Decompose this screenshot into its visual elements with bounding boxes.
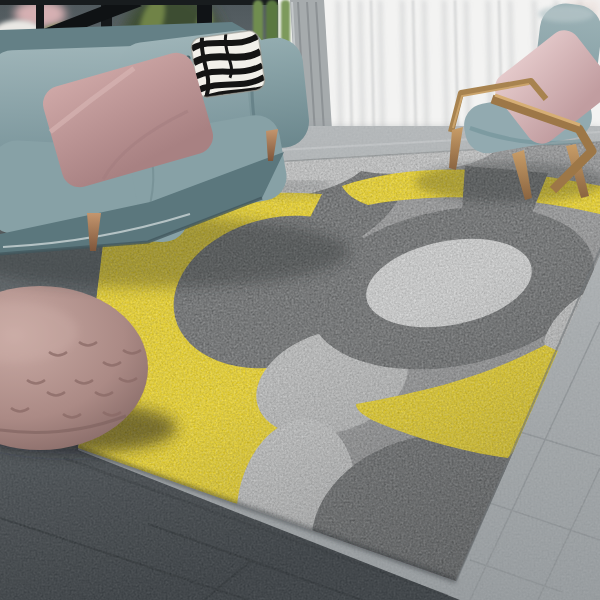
living-room-photo xyxy=(0,0,600,600)
scene-canvas xyxy=(0,0,600,600)
zebra-pillow xyxy=(190,30,266,99)
chair-backrest-highlight xyxy=(538,6,594,22)
